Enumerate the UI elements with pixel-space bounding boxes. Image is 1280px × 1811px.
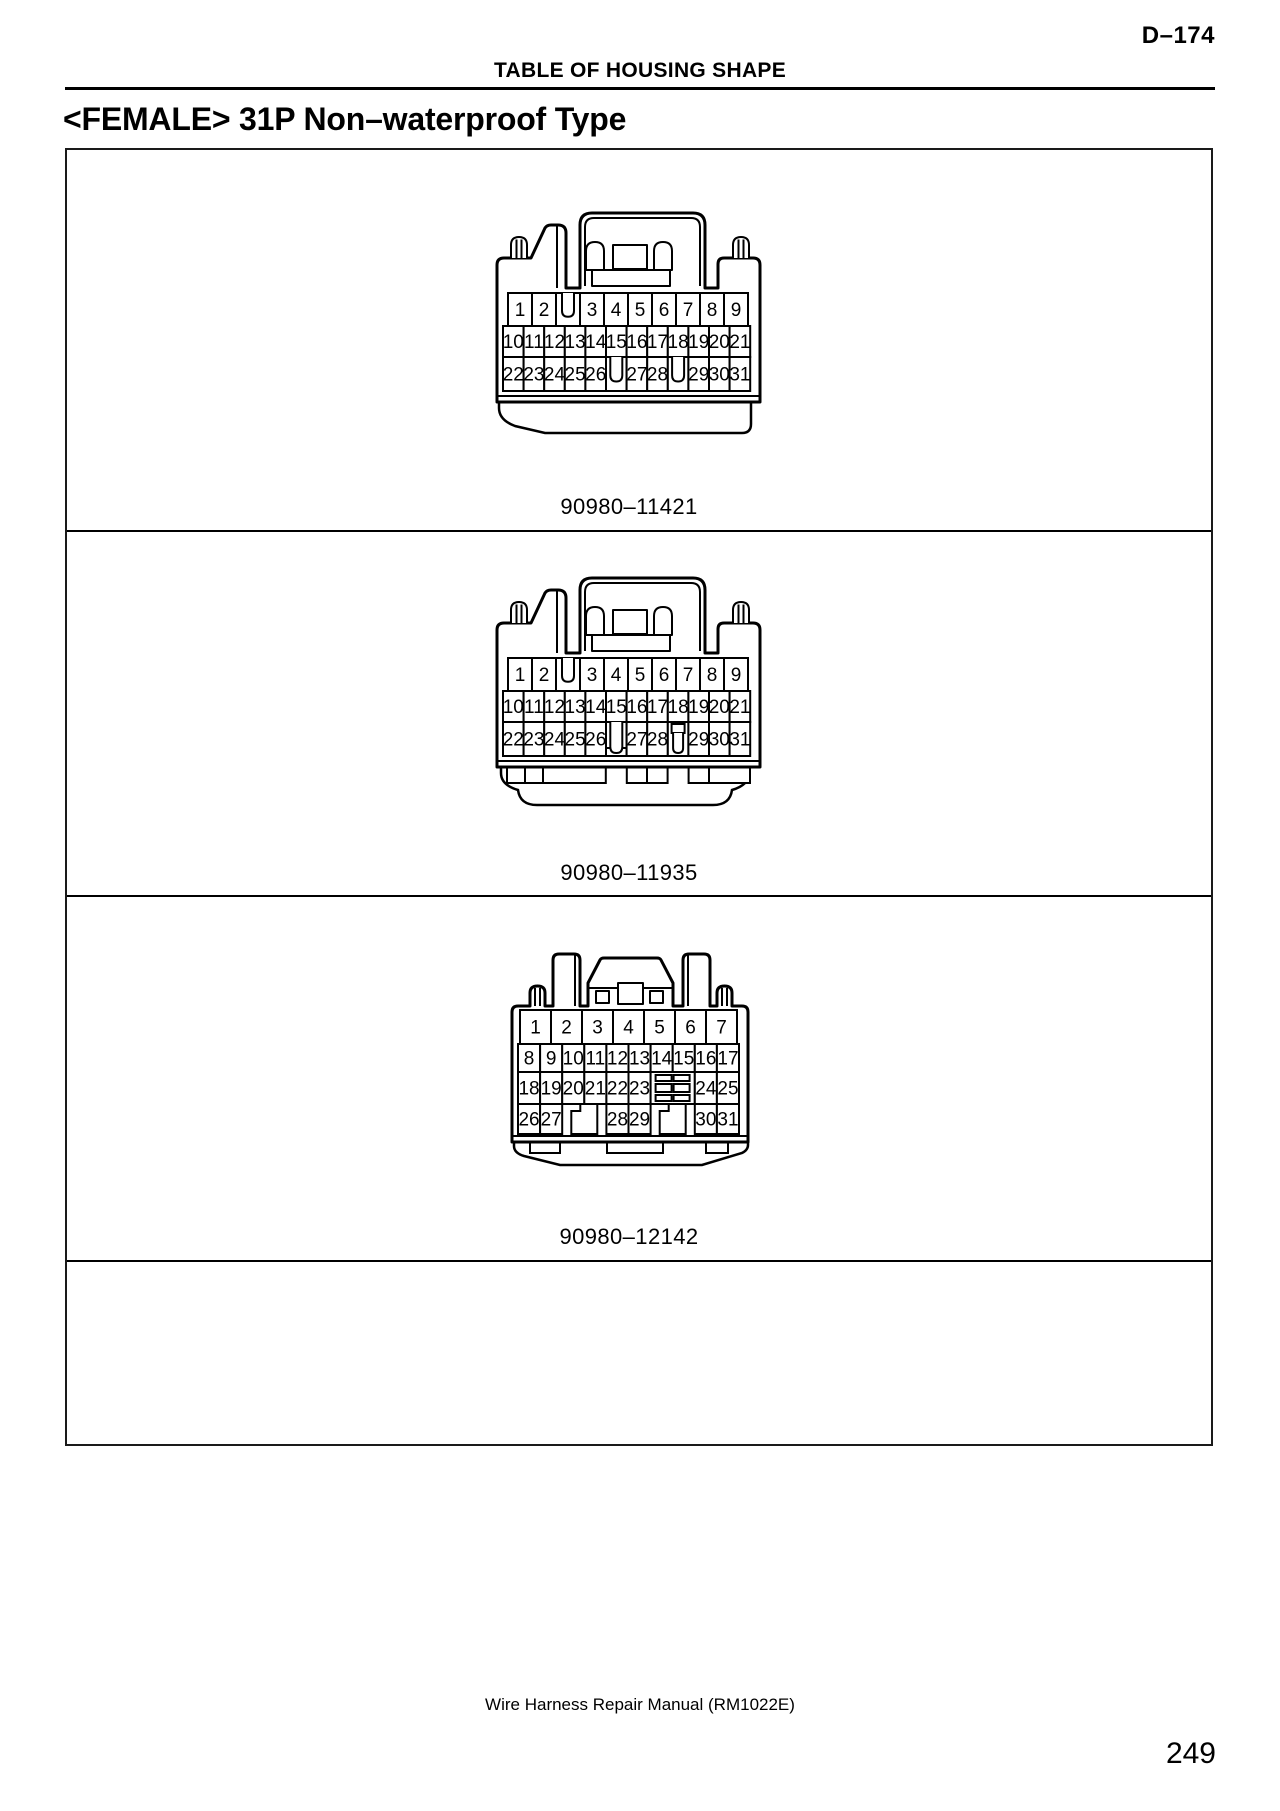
- pin-number: 15: [673, 1049, 694, 1070]
- pin-number: 24: [695, 1079, 717, 1100]
- latch-bump-right: [733, 602, 749, 623]
- pin-number: 4: [611, 665, 622, 686]
- pin-number: 7: [683, 300, 694, 321]
- pin-number: 10: [503, 332, 524, 353]
- pin-number: 6: [659, 665, 670, 686]
- pin-number: 24: [544, 730, 566, 751]
- pin-number: 7: [683, 665, 694, 686]
- pin-number: 21: [729, 697, 750, 718]
- part-number: 90980–12142: [57, 1224, 1201, 1250]
- pin-grid: 1234567891011121314151617181920212223242…: [503, 658, 751, 756]
- lock-band: [592, 270, 670, 286]
- pin-number: 3: [592, 1018, 603, 1039]
- pin-number: 3: [587, 300, 598, 321]
- pin-number: 9: [731, 665, 742, 686]
- connector-diagram-90980-11935: 1234567891011121314151617181920212223242…: [487, 562, 770, 812]
- latch-bump-left: [511, 237, 527, 258]
- header-rule: [65, 87, 1215, 90]
- pin-number: 17: [647, 332, 668, 353]
- pin-number: 11: [524, 332, 544, 353]
- pin-number: 8: [524, 1049, 535, 1070]
- lock-ear-right: [654, 607, 672, 635]
- pin-number: 21: [729, 332, 750, 353]
- pin-number: 23: [629, 1079, 650, 1100]
- pin-number: 1: [515, 665, 526, 686]
- pin-number: 4: [611, 300, 622, 321]
- housing-row-11421: 1234567891011121314151617181920212223242…: [67, 150, 1211, 532]
- pin-number: 16: [626, 332, 647, 353]
- pin-number: 11: [524, 697, 544, 718]
- pin-number: 9: [546, 1049, 557, 1070]
- keying-slot-icon: [673, 733, 683, 753]
- pin-number: 10: [563, 1049, 584, 1070]
- pin-number: 30: [695, 1110, 716, 1131]
- lock-center-tab: [613, 610, 647, 634]
- connector-base-skirt: [499, 402, 751, 433]
- lock-detail-left: [596, 991, 609, 1003]
- pin-number: 26: [585, 730, 606, 751]
- housing-row-11935: 1234567891011121314151617181920212223242…: [67, 532, 1211, 897]
- rib-block: [674, 1075, 690, 1081]
- rib-block: [656, 1084, 672, 1092]
- page-title: <FEMALE> 31P Non–waterproof Type: [63, 101, 626, 138]
- pin-number: 26: [518, 1110, 539, 1131]
- pin-number: 15: [606, 332, 627, 353]
- pin-number: 18: [668, 332, 689, 353]
- pin-number: 13: [565, 697, 586, 718]
- pin-number: 22: [503, 365, 524, 386]
- keying-slot-icon: [610, 722, 622, 753]
- pin-number: 29: [629, 1110, 650, 1131]
- pin-number: 4: [623, 1018, 634, 1039]
- pin-number: 25: [717, 1079, 738, 1100]
- pin-number: 17: [717, 1049, 738, 1070]
- pin-number: 6: [659, 300, 670, 321]
- base-rib-strip: [507, 767, 750, 783]
- page-number: 249: [1166, 1737, 1216, 1771]
- pin-number: 14: [651, 1049, 673, 1070]
- lock-ear-left: [586, 242, 604, 270]
- slot-cap: [672, 724, 685, 733]
- pin-number: 16: [626, 697, 647, 718]
- pin-number: 5: [635, 665, 646, 686]
- lock-detail-right: [650, 991, 663, 1003]
- pin-number: 7: [716, 1018, 727, 1039]
- latch-bump-left: [511, 602, 527, 623]
- pin-number: 20: [563, 1079, 584, 1100]
- pin-number: 15: [606, 697, 627, 718]
- manual-page: D–174 TABLE OF HOUSING SHAPE <FEMALE> 31…: [0, 0, 1280, 1811]
- pin-number: 19: [541, 1079, 562, 1100]
- pin-number: 22: [607, 1079, 628, 1100]
- pin-number: 2: [539, 300, 550, 321]
- pin-number: 8: [707, 300, 718, 321]
- latch-bump-right: [733, 237, 749, 258]
- connector-base-skirt: [501, 767, 750, 805]
- pin-number: 27: [541, 1110, 562, 1131]
- pin-number: 28: [607, 1110, 628, 1131]
- pin-number: 3: [587, 665, 598, 686]
- pin-number: 22: [503, 730, 524, 751]
- pin-number: 13: [629, 1049, 650, 1070]
- keying-slot-icon: [610, 357, 622, 381]
- keying-slot-icon: [672, 357, 684, 381]
- pin-number: 21: [585, 1079, 606, 1100]
- pin-number: 6: [685, 1018, 696, 1039]
- housing-row-12142: 1234567891011121314151617181920212223242…: [67, 897, 1211, 1262]
- pin-number: 12: [607, 1049, 628, 1070]
- rib-block: [656, 1075, 672, 1081]
- pin-number: 14: [585, 697, 607, 718]
- pin-number: 20: [709, 697, 730, 718]
- pin-grid: 1234567891011121314151617181920212223242…: [503, 293, 751, 391]
- rib-block: [656, 1095, 672, 1101]
- pin-number: 19: [688, 697, 709, 718]
- pin-number: 8: [707, 665, 718, 686]
- pin-number: 10: [503, 697, 524, 718]
- pin-number: 20: [709, 332, 730, 353]
- pin-number: 25: [565, 730, 586, 751]
- pin-number: 29: [688, 365, 709, 386]
- empty-housing-row: [67, 1262, 1211, 1444]
- pin-number: 23: [523, 365, 544, 386]
- connector-base-skirt: [514, 1142, 748, 1165]
- pin-number: 26: [585, 365, 606, 386]
- connector-diagram-90980-12142: 1234567891011121314151617181920212223242…: [504, 946, 756, 1172]
- pin-number: 18: [518, 1079, 539, 1100]
- pin-number: 12: [544, 332, 565, 353]
- pin-number: 2: [561, 1018, 572, 1039]
- pin-number: 31: [717, 1110, 738, 1131]
- pin-number: 31: [729, 730, 750, 751]
- footer-text: Wire Harness Repair Manual (RM1022E): [0, 1695, 1280, 1715]
- page-ref: D–174: [1142, 22, 1215, 50]
- pin-number: 27: [626, 365, 647, 386]
- lock-ear-right: [654, 242, 672, 270]
- part-number: 90980–11935: [57, 860, 1201, 886]
- lock-center-tab: [618, 983, 643, 1004]
- lock-center-tab: [613, 245, 647, 269]
- pin-number: 19: [688, 332, 709, 353]
- pin-number: 17: [647, 697, 668, 718]
- pin-number: 5: [635, 300, 646, 321]
- pin-number: 28: [647, 730, 668, 751]
- pin-number: 2: [539, 665, 550, 686]
- pin-number: 18: [668, 697, 689, 718]
- pin-number: 31: [729, 365, 750, 386]
- pin-number: 9: [731, 300, 742, 321]
- pin-number: 16: [695, 1049, 716, 1070]
- lock-ear-left: [586, 607, 604, 635]
- pin-number: 27: [626, 730, 647, 751]
- rib-block: [674, 1095, 690, 1101]
- pin-number: 28: [647, 365, 668, 386]
- pin-number: 14: [585, 332, 607, 353]
- pin-number: 25: [565, 365, 586, 386]
- pin-number: 5: [654, 1018, 665, 1039]
- pin-number: 1: [515, 300, 526, 321]
- keying-slot-icon: [562, 293, 574, 317]
- lock-band: [592, 635, 670, 651]
- pin-number: 29: [688, 730, 709, 751]
- pin-number: 24: [544, 365, 566, 386]
- part-number: 90980–11421: [57, 494, 1201, 520]
- housing-table-box: 1234567891011121314151617181920212223242…: [65, 148, 1213, 1446]
- keying-slot-icon: [562, 658, 574, 682]
- pin-number: 12: [544, 697, 565, 718]
- pin-number: 23: [523, 730, 544, 751]
- pin-grid: 1234567891011121314151617181920212223242…: [518, 1010, 739, 1134]
- pin-number: 30: [709, 730, 730, 751]
- pin-number: 30: [709, 365, 730, 386]
- connector-diagram-90980-11421: 1234567891011121314151617181920212223242…: [487, 197, 770, 447]
- pin-number: 1: [530, 1018, 541, 1039]
- rib-block: [674, 1084, 690, 1092]
- header-title: TABLE OF HOUSING SHAPE: [0, 59, 1280, 83]
- pin-number: 13: [565, 332, 586, 353]
- pin-number: 11: [585, 1049, 605, 1070]
